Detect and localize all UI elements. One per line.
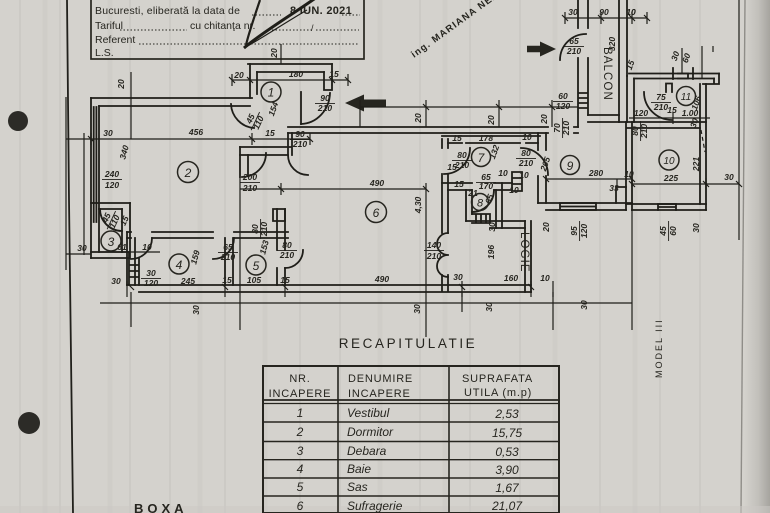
svg-text:INCAPERE: INCAPERE: [269, 388, 332, 400]
svg-text:INCAPERE: INCAPERE: [348, 388, 411, 400]
svg-text:3,90: 3,90: [495, 463, 519, 477]
svg-text:Sas: Sas: [347, 480, 368, 494]
svg-text:0,53: 0,53: [495, 445, 519, 459]
svg-text:Sufragerie: Sufragerie: [347, 499, 403, 513]
svg-text:BOXA: BOXA: [134, 501, 188, 513]
svg-text:2: 2: [296, 425, 304, 439]
svg-text:15,75: 15,75: [492, 426, 522, 440]
svg-text:1: 1: [297, 406, 304, 420]
svg-text:2,53: 2,53: [494, 407, 519, 421]
svg-text:6: 6: [297, 499, 304, 513]
svg-text:4: 4: [297, 462, 304, 476]
svg-text:NR.: NR.: [289, 373, 310, 385]
svg-text:1,67: 1,67: [495, 481, 520, 495]
svg-text:Debara: Debara: [347, 444, 387, 458]
svg-text:5: 5: [297, 480, 304, 494]
svg-text:Baie: Baie: [347, 462, 371, 476]
svg-text:MODEL III: MODEL III: [654, 318, 664, 378]
svg-text:UTILA (m.p): UTILA (m.p): [464, 387, 532, 399]
svg-text:SUPRAFATA: SUPRAFATA: [462, 373, 533, 385]
svg-text:3: 3: [297, 444, 304, 458]
svg-text:21,07: 21,07: [491, 499, 523, 513]
svg-text:Dormitor: Dormitor: [347, 425, 394, 439]
svg-text:Vestibul: Vestibul: [347, 406, 390, 420]
svg-text:DENUMIRE: DENUMIRE: [348, 373, 413, 385]
svg-text:RECAPITULATIE: RECAPITULATIE: [339, 336, 478, 351]
